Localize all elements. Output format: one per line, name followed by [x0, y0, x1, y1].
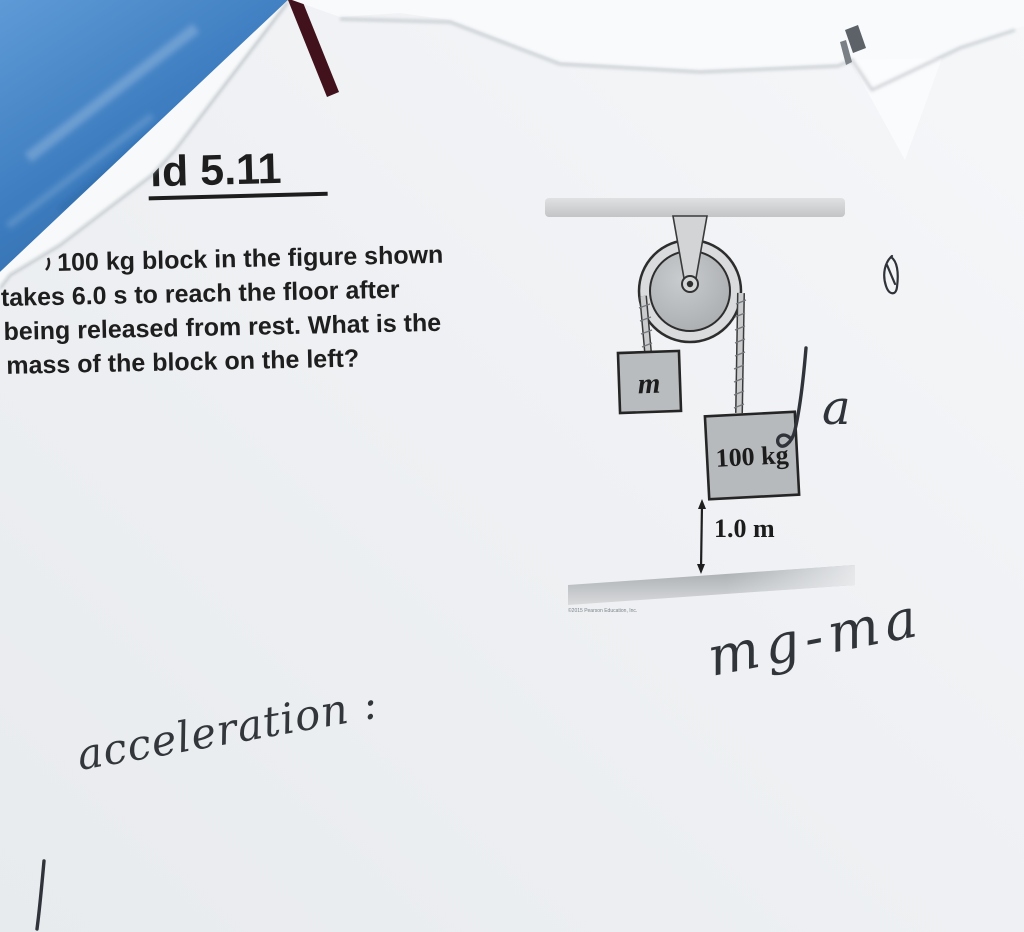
- pulley-axle-pin: [687, 281, 693, 287]
- ceiling-bar: [545, 198, 845, 217]
- height-label: 1.0 m: [714, 514, 775, 543]
- micro-credit-text: ©2015 Pearson Education, Inc.: [568, 607, 637, 614]
- left-block-label: m: [637, 368, 661, 401]
- photo-canvas: id 5.11 100 kg block in the figure shown…: [0, 0, 1024, 932]
- handwritten-acceleration-label: a: [822, 380, 851, 436]
- right-rope-fill: [739, 293, 741, 413]
- photographed-worksheet: id 5.11 100 kg block in the figure shown…: [0, 0, 1024, 932]
